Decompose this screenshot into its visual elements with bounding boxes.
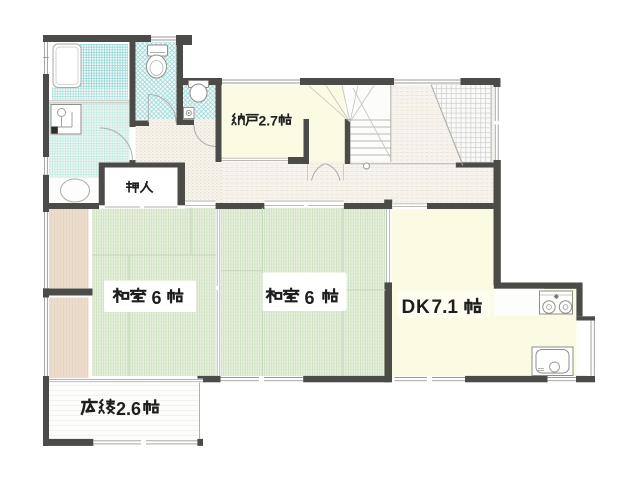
svg-text:7.1: 7.1	[432, 297, 459, 318]
svg-text:6: 6	[152, 288, 162, 308]
svg-text:2.7: 2.7	[259, 113, 279, 129]
svg-text:6: 6	[305, 288, 315, 308]
svg-text:D: D	[402, 297, 416, 318]
svg-text:2.6: 2.6	[116, 399, 141, 419]
svg-text:K: K	[416, 297, 430, 318]
